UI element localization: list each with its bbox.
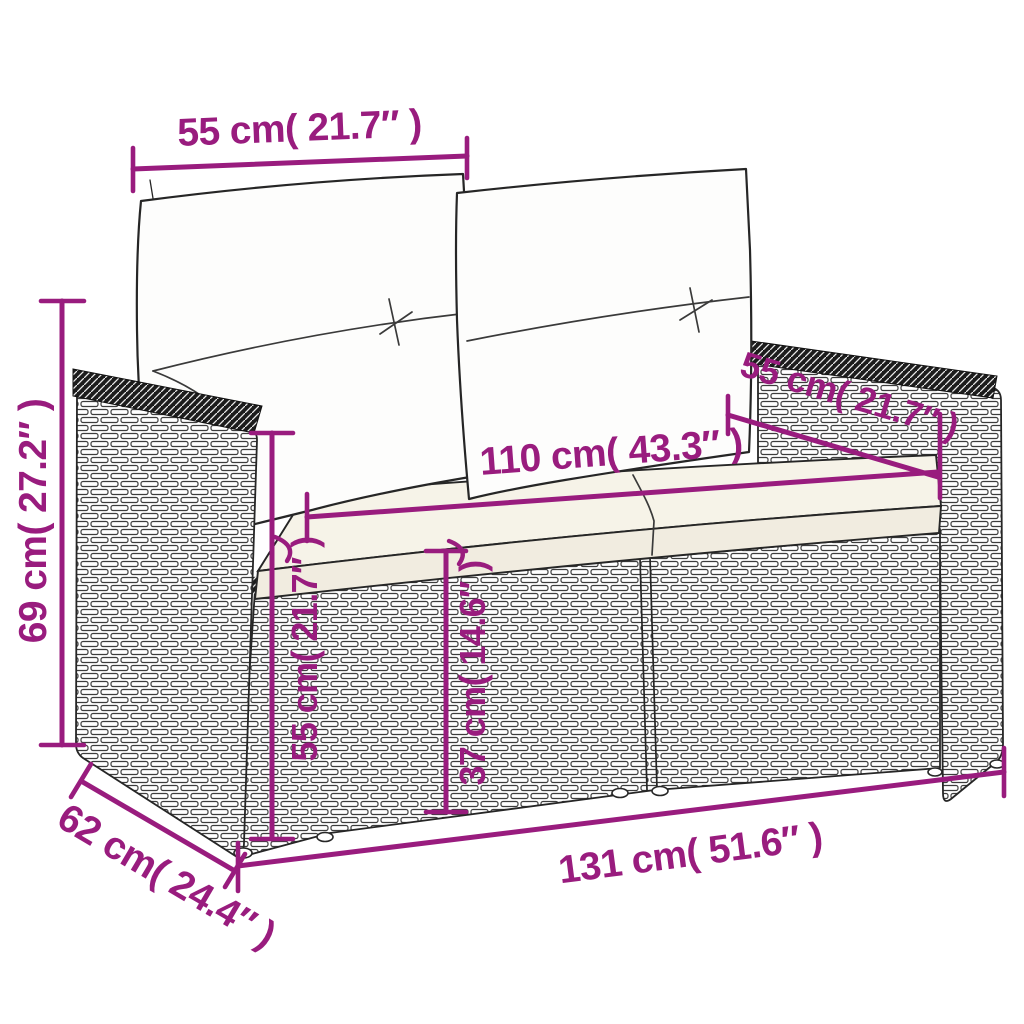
dimension-label: 55 cm( 21.7″ ) xyxy=(284,537,325,762)
dimension-label: 37 cm( 14.6″ ) xyxy=(452,561,493,786)
sofa-foot xyxy=(612,789,628,798)
dimension-diagram: 55 cm( 21.7″ ) 69 cm( 27.2″ ) 110 cm( 43… xyxy=(0,0,1024,1024)
sofa-illustration xyxy=(73,169,1004,858)
sofa-foot xyxy=(317,833,333,842)
dimension-label: 69 cm( 27.2″ ) xyxy=(12,399,55,643)
sofa-foot xyxy=(652,787,668,796)
dimension-label: 55 cm( 21.7″ ) xyxy=(177,102,423,155)
sofa-foot xyxy=(928,768,942,776)
dimension-line xyxy=(133,156,467,169)
diagram-canvas: 55 cm( 21.7″ ) 69 cm( 27.2″ ) 110 cm( 43… xyxy=(0,0,1024,1024)
dim-overall-height: 69 cm( 27.2″ ) xyxy=(12,301,84,745)
dimension-tick xyxy=(71,764,91,797)
left-armrest xyxy=(73,369,262,857)
dimension-tick xyxy=(225,854,245,887)
dimension-label: 131 cm( 51.6″ ) xyxy=(556,815,825,892)
left-armrest-body xyxy=(76,392,257,857)
